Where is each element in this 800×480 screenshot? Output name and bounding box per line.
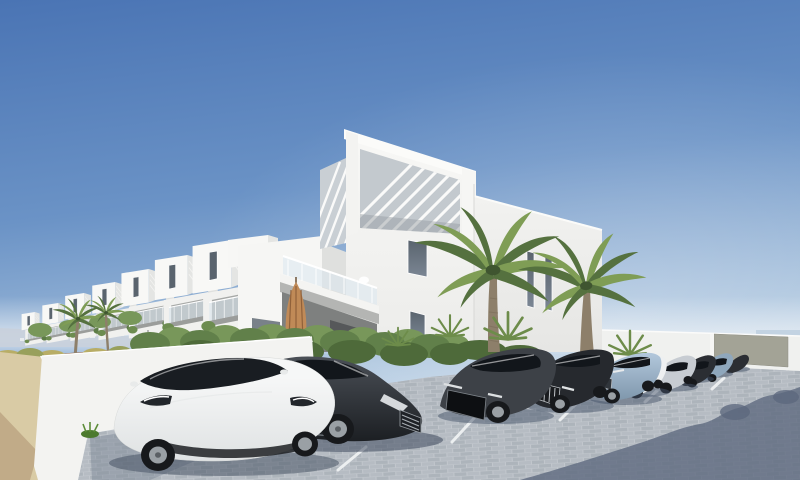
wing-window-1 [527,251,534,308]
balcony-chair [359,277,369,284]
tesla-rim-right [298,437,312,450]
tower-left-pillar [346,131,358,237]
peugeot-hub [335,426,341,432]
tesla-mirror-right [280,369,288,374]
tesla-mirror-left [130,381,138,386]
render-canvas: 3D render of a modern white apartment co… [0,0,800,480]
tower-window-upper [408,240,427,277]
palm-shadow-blob-1 [720,404,750,420]
scene-svg: 3D render of a modern white apartment co… [0,0,800,480]
tesla-hub-left [155,452,161,458]
palm-shadow-blob-2 [773,390,799,404]
